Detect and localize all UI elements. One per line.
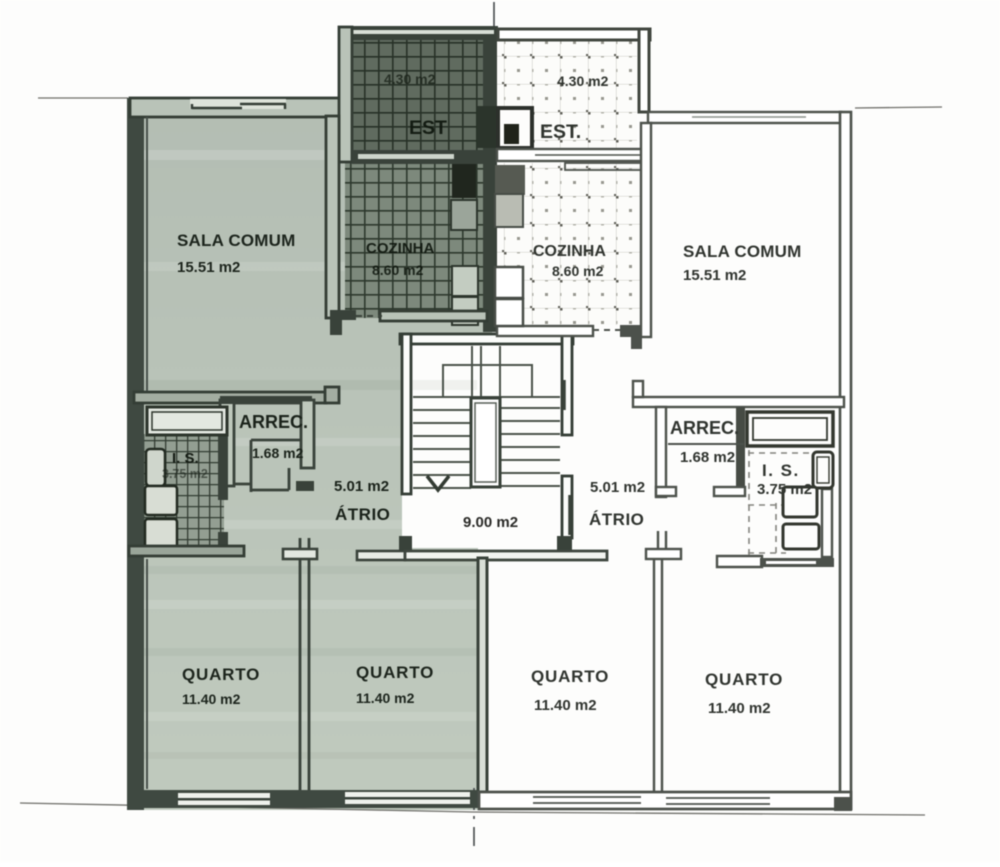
svg-text:3.75 m2: 3.75 m2 [757, 481, 812, 498]
svg-text:COZINHA: COZINHA [366, 240, 434, 257]
svg-text:QUARTO: QUARTO [531, 667, 609, 686]
svg-text:4.30 m2: 4.30 m2 [557, 73, 609, 89]
svg-text:11.40 m2: 11.40 m2 [356, 690, 415, 706]
svg-text:ARREC.: ARREC. [670, 418, 739, 438]
svg-text:I. S.: I. S. [762, 461, 800, 480]
svg-text:SALA COMUM: SALA COMUM [177, 231, 295, 250]
svg-text:11.40 m2: 11.40 m2 [534, 697, 597, 714]
svg-text:QUARTO: QUARTO [356, 663, 434, 682]
svg-text:EST: EST [409, 117, 447, 139]
svg-text:ARREC.: ARREC. [239, 412, 308, 432]
svg-text:4.30 m2: 4.30 m2 [384, 71, 436, 87]
svg-text:8.60 m2: 8.60 m2 [372, 262, 424, 278]
svg-text:5.01 m2: 5.01 m2 [590, 479, 645, 496]
svg-text:1.68 m2: 1.68 m2 [252, 445, 304, 461]
svg-text:COZINHA: COZINHA [533, 243, 606, 260]
svg-text:15.51 m2: 15.51 m2 [177, 259, 240, 276]
svg-text:I. S.: I. S. [172, 450, 199, 467]
svg-text:1.68 m2: 1.68 m2 [680, 449, 735, 466]
svg-text:ÁTRIO: ÁTRIO [589, 510, 644, 529]
svg-text:11.40 m2: 11.40 m2 [708, 700, 771, 717]
svg-text:8.60 m2: 8.60 m2 [552, 263, 604, 279]
svg-text:QUARTO: QUARTO [705, 670, 783, 689]
svg-text:15.51 m2: 15.51 m2 [683, 267, 746, 284]
svg-text:ÁTRIO: ÁTRIO [335, 505, 390, 524]
svg-text:EST.: EST. [540, 121, 581, 143]
svg-text:11.40 m2: 11.40 m2 [182, 691, 241, 707]
svg-text:QUARTO: QUARTO [182, 665, 260, 684]
svg-text:3.75 m2: 3.75 m2 [162, 467, 208, 481]
svg-text:9.00 m2: 9.00 m2 [463, 514, 518, 531]
svg-text:5.01 m2: 5.01 m2 [334, 478, 389, 495]
svg-text:SALA COMUM: SALA COMUM [683, 242, 801, 261]
